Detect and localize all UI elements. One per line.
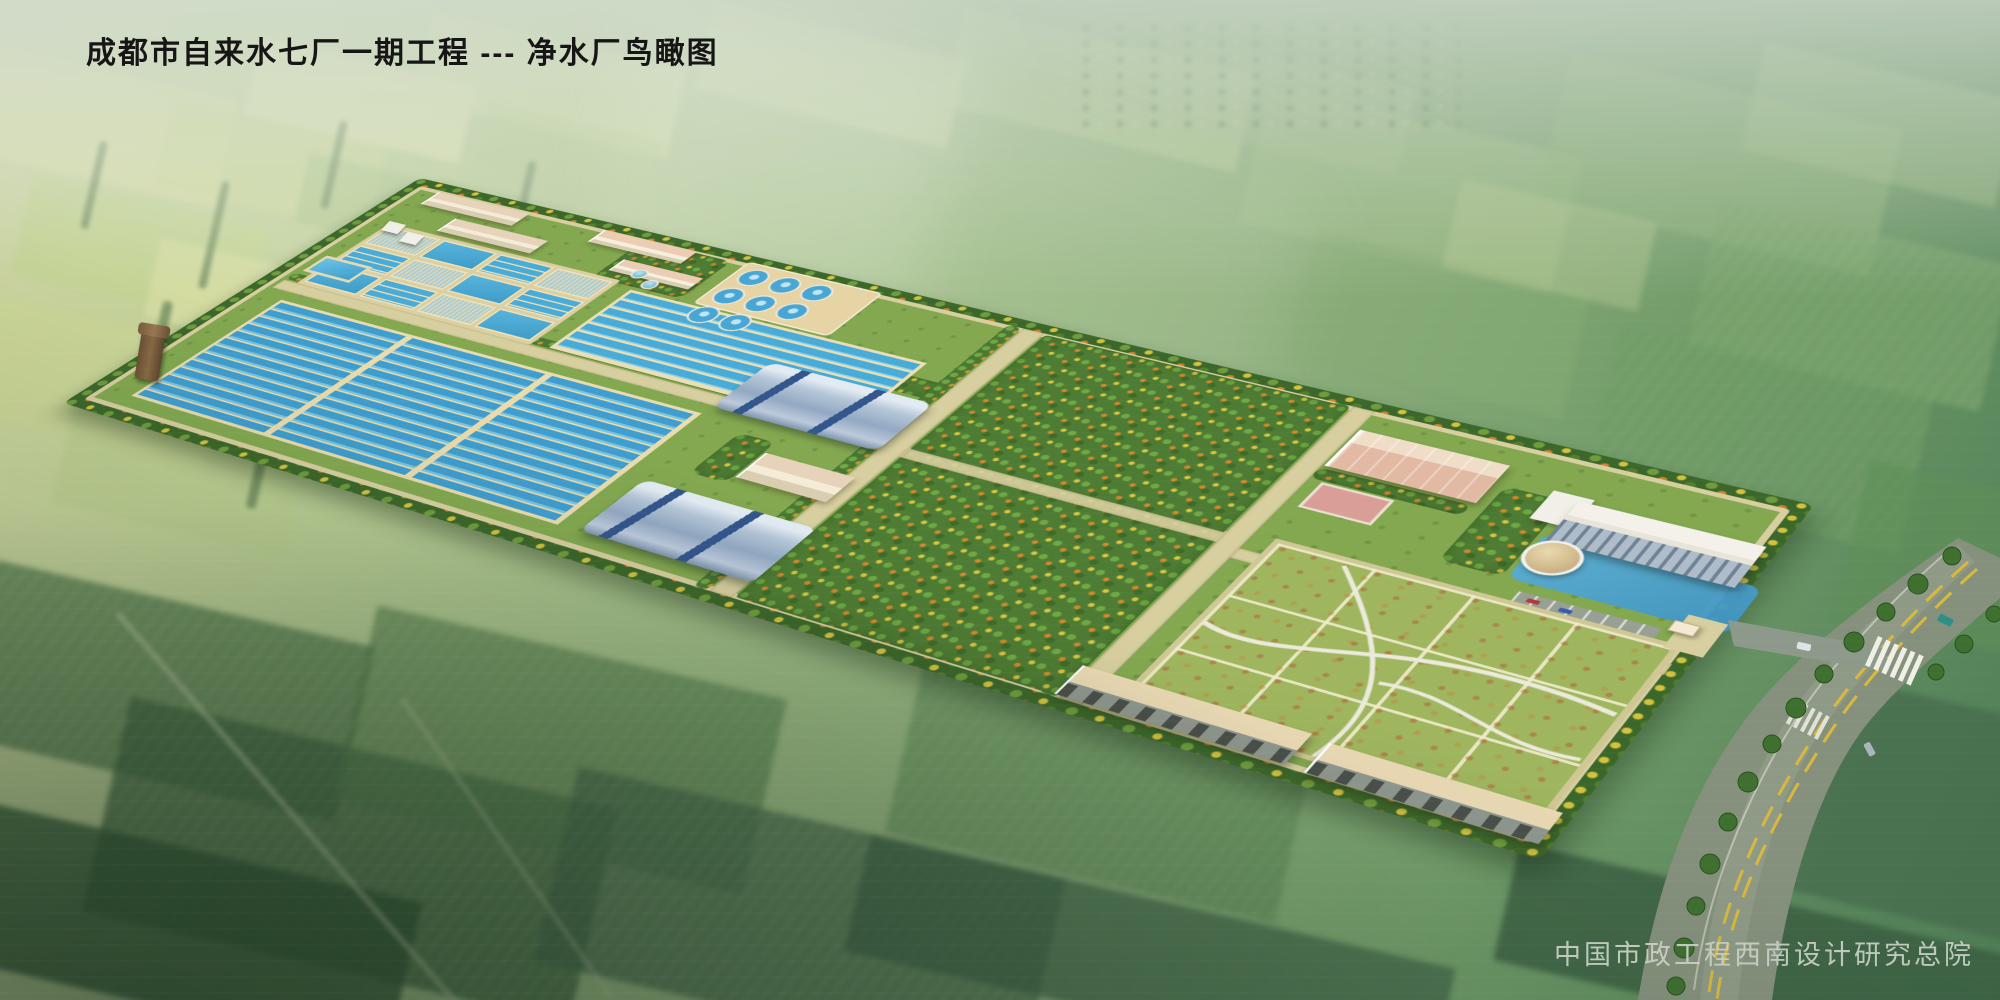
design-institute-credit: 中国市政工程西南设计研究总院 bbox=[1554, 933, 1974, 972]
aerial-rendering-canvas: 成都市自来水七厂一期工程 --- 净水厂鸟瞰图 中国市政工程西南设计研究总院 bbox=[0, 0, 2000, 1000]
page-title: 成都市自来水七厂一期工程 --- 净水厂鸟瞰图 bbox=[86, 28, 719, 72]
field-patch bbox=[1779, 674, 2000, 947]
